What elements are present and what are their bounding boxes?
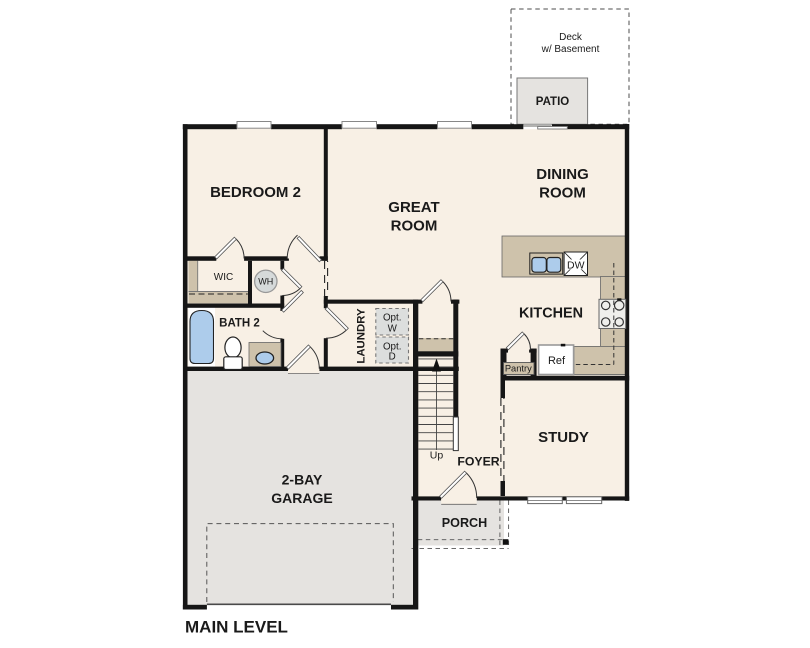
svg-text:PATIO: PATIO — [536, 96, 569, 108]
svg-text:ROOM: ROOM — [539, 185, 586, 202]
svg-text:DINING: DINING — [536, 166, 589, 183]
svg-text:KITCHEN: KITCHEN — [519, 306, 583, 322]
svg-text:BATH 2: BATH 2 — [219, 318, 260, 330]
svg-text:ROOM: ROOM — [391, 218, 438, 235]
svg-text:2-BAY: 2-BAY — [282, 472, 323, 488]
svg-text:WH: WH — [258, 277, 273, 287]
svg-text:BEDROOM 2: BEDROOM 2 — [210, 184, 301, 201]
svg-text:GARAGE: GARAGE — [271, 490, 332, 506]
svg-text:DW: DW — [567, 260, 585, 272]
svg-text:Deck: Deck — [559, 32, 583, 43]
svg-text:Opt.: Opt. — [383, 313, 402, 324]
svg-text:PORCH: PORCH — [442, 516, 487, 530]
svg-text:Up: Up — [430, 450, 444, 462]
svg-text:FOYER: FOYER — [457, 454, 499, 468]
svg-text:W: W — [388, 323, 398, 334]
svg-text:w/ Basement: w/ Basement — [541, 44, 600, 55]
svg-text:Ref: Ref — [548, 355, 566, 367]
svg-text:MAIN LEVEL: MAIN LEVEL — [185, 618, 288, 637]
svg-text:STUDY: STUDY — [538, 429, 589, 446]
svg-text:D: D — [389, 352, 396, 363]
svg-text:LAUNDRY: LAUNDRY — [356, 308, 368, 364]
svg-text:Pantry: Pantry — [505, 363, 532, 373]
svg-text:GREAT: GREAT — [388, 199, 439, 216]
svg-text:WIC: WIC — [214, 272, 233, 283]
